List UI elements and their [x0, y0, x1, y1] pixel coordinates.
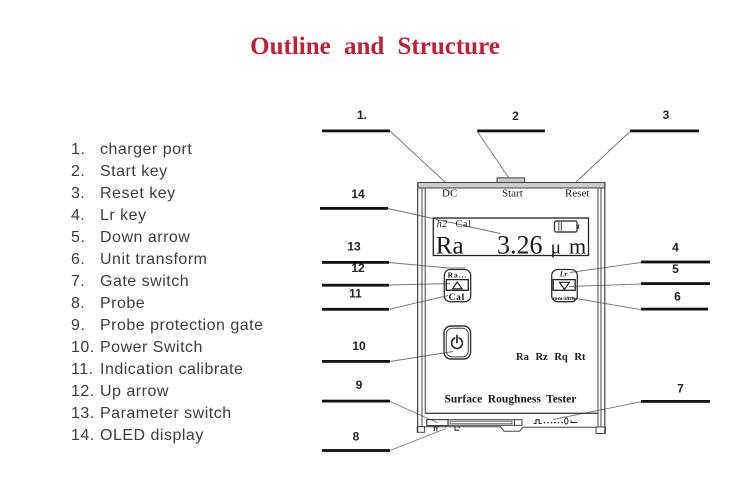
svg-text:m: m	[569, 234, 586, 259]
svg-text:7: 7	[677, 382, 684, 396]
svg-text:10: 10	[352, 339, 366, 353]
svg-text:4: 4	[672, 241, 679, 255]
svg-text:14: 14	[351, 187, 365, 201]
svg-text:Ra: Ra	[436, 233, 464, 260]
svg-text:1.: 1.	[357, 108, 367, 122]
svg-text:Start: Start	[502, 188, 523, 200]
svg-text:DC: DC	[442, 188, 457, 200]
svg-text:13: 13	[347, 240, 361, 254]
svg-text:Surface Roughness Tester: Surface Roughness Tester	[445, 394, 577, 406]
svg-text:Cal: Cal	[456, 219, 472, 230]
svg-text:12: 12	[351, 261, 365, 275]
svg-text:Lr: Lr	[559, 270, 568, 279]
svg-text:3.26: 3.26	[497, 231, 543, 260]
svg-text:2: 2	[512, 109, 519, 123]
svg-text:h2: h2	[437, 219, 448, 230]
svg-text:Cal: Cal	[448, 293, 465, 303]
svg-text:mm/inch: mm/inch	[553, 296, 576, 302]
svg-text:8: 8	[353, 430, 360, 444]
svg-text:μ: μ	[551, 237, 561, 258]
svg-text:6: 6	[674, 290, 681, 304]
svg-text:Ra...: Ra...	[448, 271, 468, 280]
svg-text:3: 3	[663, 108, 670, 122]
svg-text:9: 9	[356, 378, 363, 392]
svg-text:Reset: Reset	[565, 188, 589, 200]
svg-text:5: 5	[672, 262, 679, 276]
svg-text:11: 11	[349, 287, 362, 301]
svg-text:Ra Rz Rq Rt: Ra Rz Rq Rt	[516, 352, 586, 363]
